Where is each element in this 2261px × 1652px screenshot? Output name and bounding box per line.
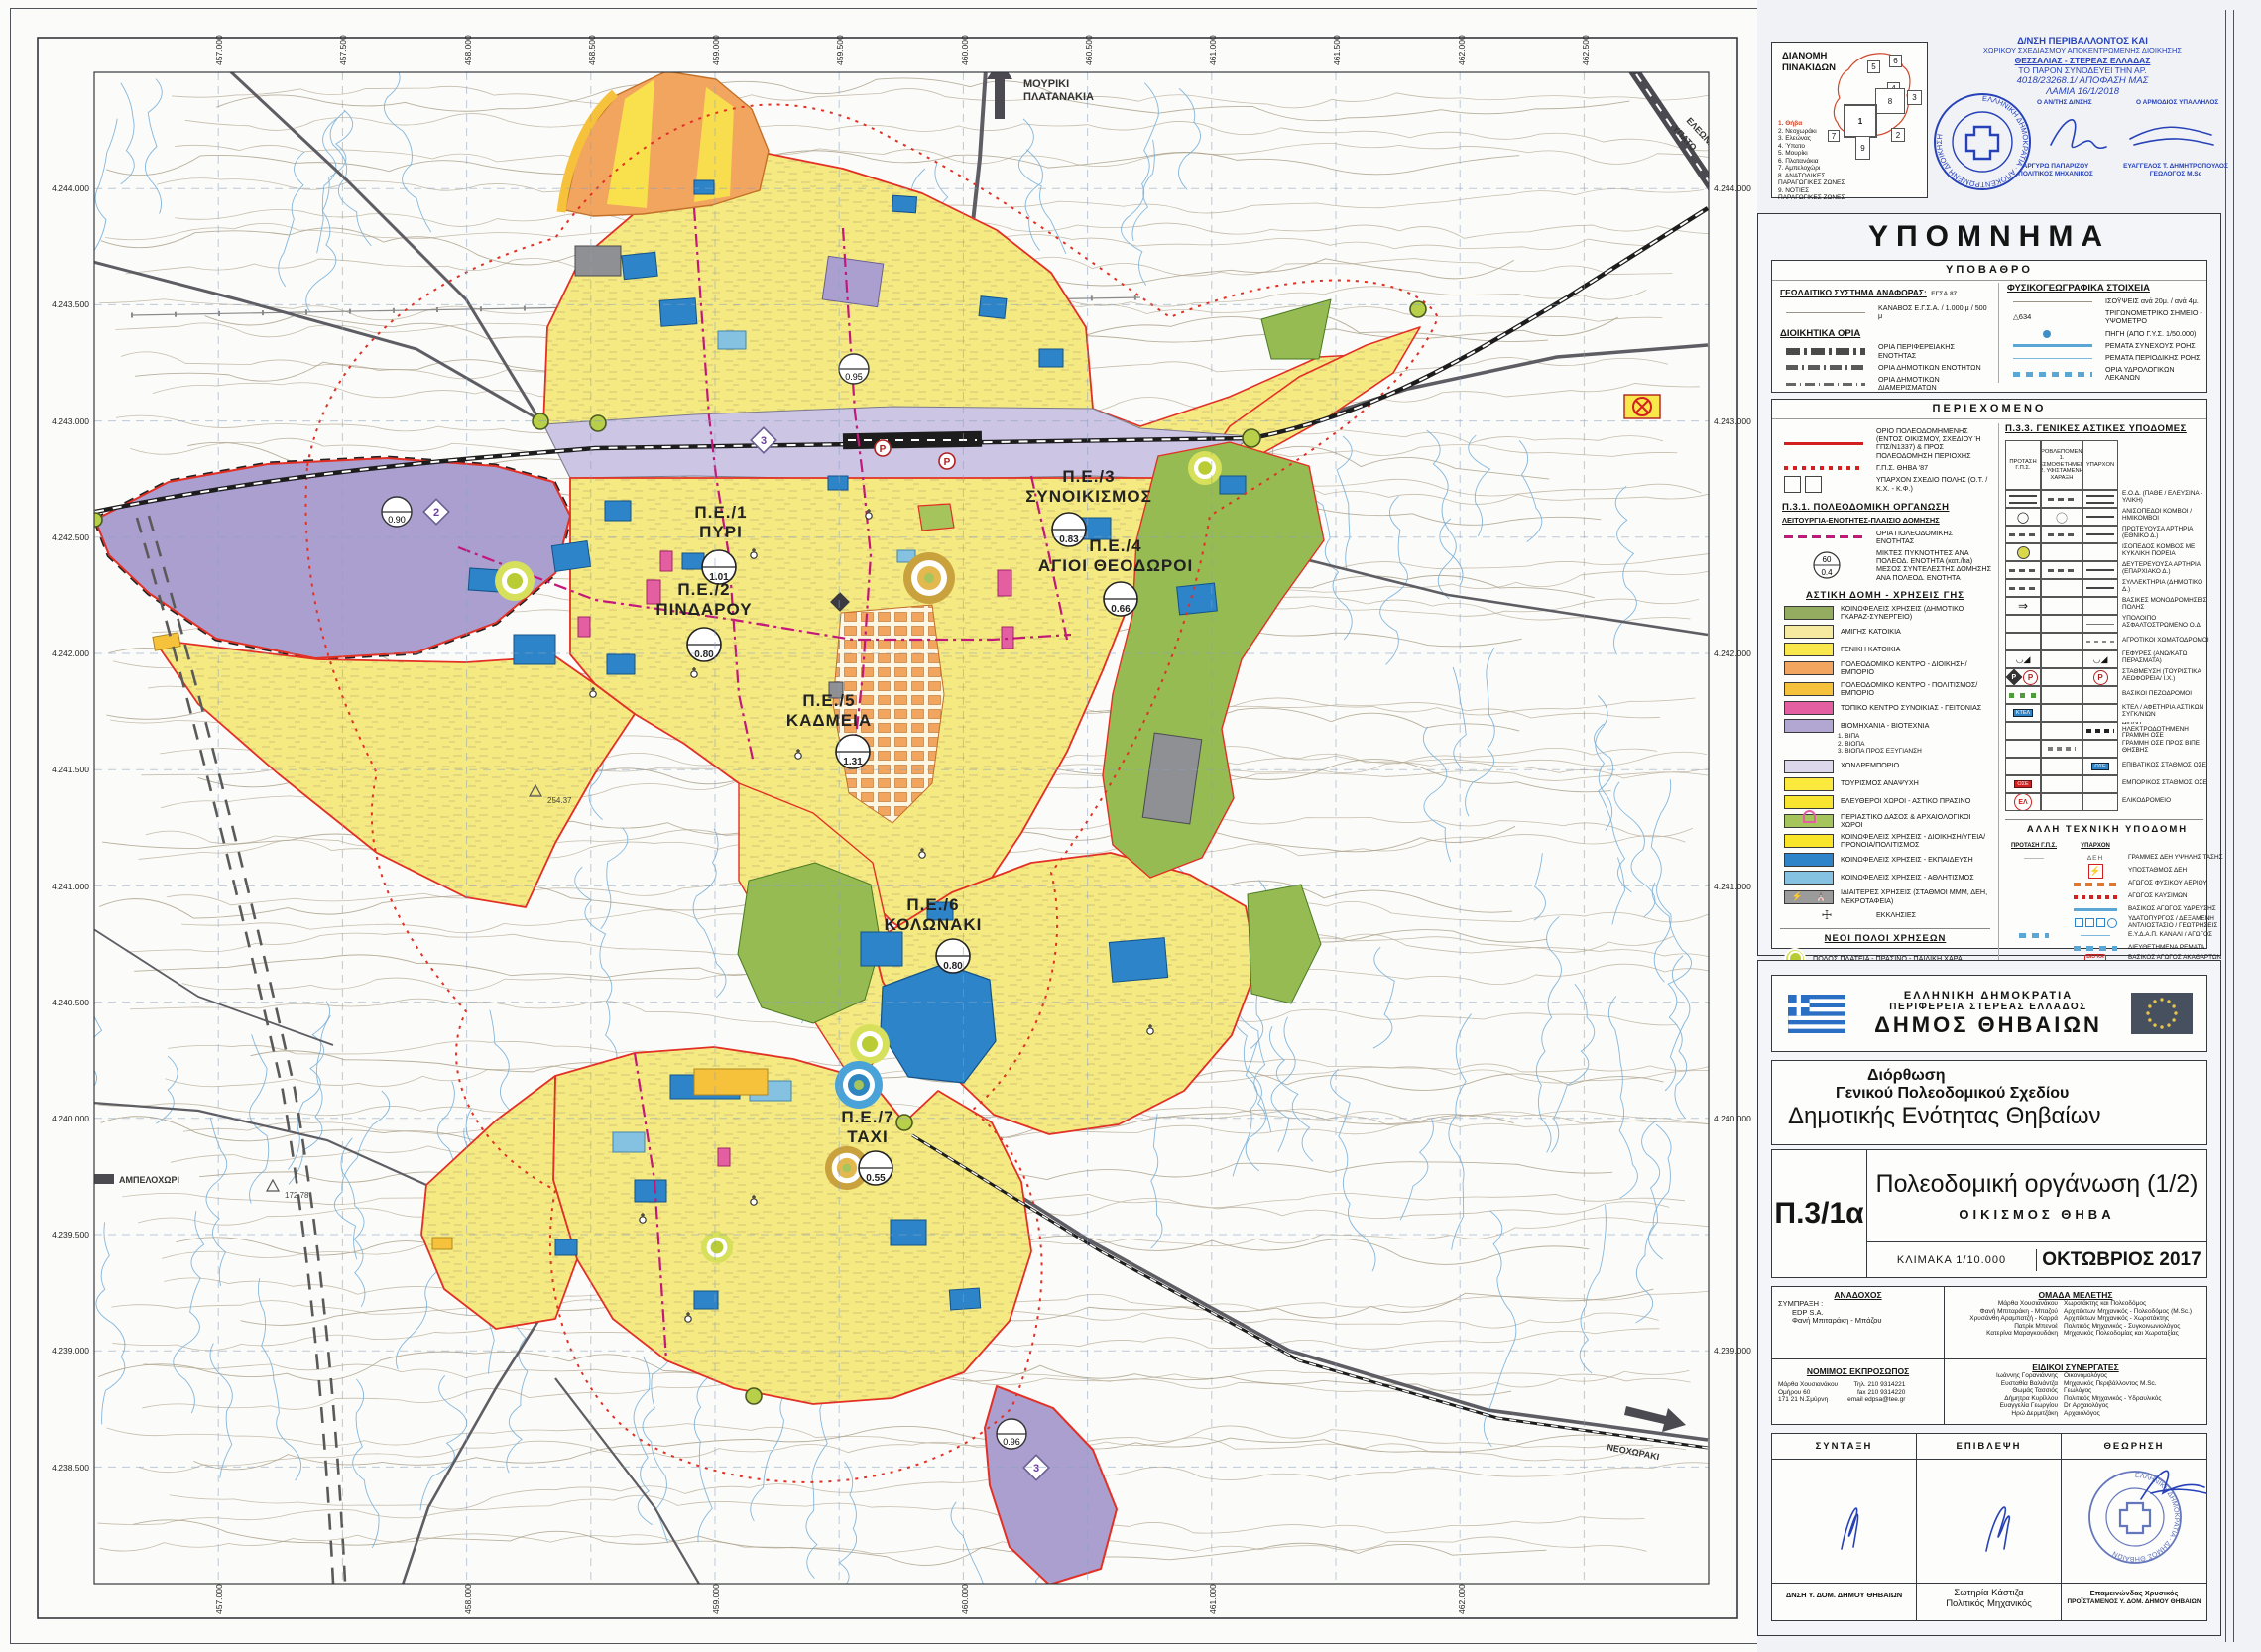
svg-text:4.240.000: 4.240.000: [1714, 1114, 1751, 1123]
svg-text:0.80: 0.80: [694, 649, 714, 660]
p33-title: Π.3.3. ΓΕΝΙΚΕΣ ΑΣΤΙΚΕΣ ΥΠΟΔΟΜΕΣ: [2005, 423, 2209, 434]
spec-name: Ευσταθία Βαλιάντζα: [1951, 1380, 2058, 1388]
svg-text:ΚΑΔΜΕΙΑ: ΚΑΔΜΕΙΑ: [786, 711, 872, 730]
team-role: Μηχανικός Πολεοδομίας και Χωροταξίας: [2064, 1330, 2201, 1338]
svg-text:0.80: 0.80: [943, 961, 963, 972]
svg-text:4.243.500: 4.243.500: [52, 299, 89, 309]
landuse-sub: 1. ΒΙΠΑ: [1838, 733, 1992, 741]
project-line: Διόρθωση: [1867, 1067, 2206, 1085]
legend-label: ΜΕΣΟΣ ΣΥΝΤΕΛΕΣΤΗΣ ΔΟΜΗΣΗΣ ΑΝΑ ΠΟΛΕΟΔ. ΕΝ…: [1876, 564, 1991, 581]
team-role: Αρχιτέκτων Μηχανικός - Πολεοδόμος (M.Sc.…: [2064, 1308, 2201, 1316]
credits-text: Φανή Μπιταράκη - Μπάζου: [1792, 1317, 1938, 1326]
team-name: Μάρθα Χουσιανάκου: [1951, 1300, 2058, 1308]
signature-squiggle: [1822, 1489, 1881, 1559]
tile: 3: [1912, 93, 1916, 102]
spec-role: Πολιτικός Μηχανικός - Υδραυλικός: [2064, 1395, 2201, 1403]
svg-text:4.240.000: 4.240.000: [52, 1114, 89, 1123]
spec-role: Dr Αρχαιολόγος: [2064, 1402, 2201, 1410]
svg-text:ΤΑΧΙ: ΤΑΧΙ: [847, 1127, 888, 1146]
authority-line: ΠΕΡΙΦΕΡΕΙΑ ΣΤΕΡΕΑΣ ΕΛΛΑΔΟΣ: [1845, 1002, 2131, 1012]
landuse-label: ΠΟΛΕΟΔΟΜΙΚΟ ΚΕΝΤΡΟ - ΔΙΟΙΚΗΣΗ/ΕΜΠΟΡΙΟ: [1841, 660, 1992, 676]
project-line: Δημοτικής Ενότητας Θηβαίων: [1788, 1103, 2206, 1130]
svg-text:Π.Ε./3: Π.Ε./3: [1062, 467, 1115, 486]
svg-text:Π.Ε./2: Π.Ε./2: [677, 580, 730, 599]
drawing-subtitle: ΟΙΚΙΣΜΟΣ ΘΗΒΑ: [1959, 1207, 2114, 1222]
svg-text:4.241.500: 4.241.500: [52, 765, 89, 774]
eu-flag: [2131, 993, 2193, 1034]
svg-text:ΠΥΡΙ: ΠΥΡΙ: [699, 523, 743, 541]
tech-table: ΠΡΟΤΑΣΗ Γ.Π.Σ.ΥΠΑΡΧΟΝ ΔΕΗΓΡΑΜΜΕΣ ΔΕΗ ΥΨΗ…: [2005, 839, 2209, 968]
svg-text:458.500: 458.500: [587, 35, 597, 65]
infrastructure-column: Π.3.3. ΓΕΝΙΚΕΣ ΑΣΤΙΚΕΣ ΥΠΟΔΟΜΕΣ ΠΡΟΤΑΣΗ …: [1998, 423, 2209, 968]
index-item: 4. Ύπατο: [1778, 143, 1847, 151]
map-content: P P 254.37 172.78 2 0.90 3 0.95 3 0.96 Π…: [21, 40, 1752, 1652]
geo-value: ΕΓΣΑ 87: [1931, 291, 1957, 297]
landuse-label: ΚΟΙΝΩΦΕΛΕΙΣ ΧΡΗΣΕΙΣ (ΔΗΜΟΤΙΚΟ ΓΚΑΡΑΖ-ΣΥΝ…: [1841, 605, 1992, 621]
landuse-label: ΚΟΙΝΩΦΕΛΕΙΣ ΧΡΗΣΕΙΣ - ΔΙΟΙΚΗΣΗ/ΥΓΕΙΑ/ΠΡΟ…: [1841, 833, 1992, 849]
index-item: 5. Μουρίκι: [1778, 150, 1847, 158]
svg-text:0.4: 0.4: [1821, 568, 1833, 577]
svg-text:Π.Ε./7: Π.Ε./7: [841, 1108, 893, 1126]
landuse-label: ΠΟΛΕΟΔΟΜΙΚΟ ΚΕΝΤΡΟ - ΠΟΛΙΤΙΣΜΟΣ/ΕΜΠΟΡΙΟ: [1841, 681, 1992, 697]
landuse-label: ΕΛΕΥΘΕΡΟΙ ΧΩΡΟΙ - ΑΣΤΙΚΟ ΠΡΑΣΙΝΟ: [1841, 797, 1970, 805]
credits-title: ΝΟΜΙΜΟΣ ΕΚΠΡΟΣΩΠΟΣ: [1778, 1366, 1938, 1376]
svg-text:4.239.500: 4.239.500: [52, 1230, 89, 1239]
index-list: 1. Θήβα 2. Νεοχωράκι 3. Ελεώνας 4. Ύπατο…: [1778, 120, 1847, 202]
ose-station-icon: [1624, 395, 1660, 418]
stamp-line: ΘΕΣΣΑΛΙΑΣ - ΣΤΕΡΕΑΣ ΕΛΛΑΔΑΣ: [1942, 56, 2223, 65]
svg-text:4.240.500: 4.240.500: [52, 998, 89, 1007]
legend-label: ΠΗΓΗ (ΑΠΟ Γ.Υ.Σ. 1/50.000): [2105, 330, 2196, 338]
credits-title: ΟΜΑΔΑ ΜΕΛΕΤΗΣ: [1951, 1290, 2201, 1300]
svg-text:462.500: 462.500: [1581, 35, 1591, 65]
team-role: Πολιτικός Μηχανικός - Συγκοινωνιολόγος: [2064, 1323, 2201, 1331]
stamp-line: ΧΩΡΙΚΟΥ ΣΧΕΔΙΑΣΜΟΥ ΑΠΟΚΕΝΤΡΩΜΕΝΗΣ ΔΙΟΙΚΗ…: [1942, 47, 2223, 56]
svg-text:ΣΥΝΟΙΚΙΣΜΟΣ: ΣΥΝΟΙΚΙΣΜΟΣ: [1025, 487, 1152, 506]
svg-text:3: 3: [761, 435, 767, 447]
svg-text:457.000: 457.000: [214, 35, 224, 65]
tile: 2: [1896, 131, 1900, 140]
landuse-title: ΑΣΤΙΚΗ ΔΟΜΗ - ΧΡΗΣΕΙΣ ΓΗΣ: [1778, 590, 1992, 601]
svg-text:458.000: 458.000: [463, 1584, 473, 1614]
p31-subtitle: ΛΕΙΤΟΥΡΓΙΑ-ΕΝΟΤΗΤΕΣ-ΠΛΑΙΣΙΟ ΔΟΜΗΣΗΣ: [1782, 517, 1992, 526]
svg-text:0.83: 0.83: [1059, 534, 1079, 545]
svg-text:4.241.000: 4.241.000: [1714, 882, 1751, 891]
stamp-name: ΕΥΑΓΓΕΛΟΣ Τ. ΔΗΜΗΤΡΟΠΟΥΛΟΣ: [2116, 163, 2235, 171]
index-item: 7. Αμπελοχώρι: [1778, 165, 1847, 173]
physio-title: ΦΥΣΙΚΟΓΕΩΓΡΑΦΙΚΑ ΣΤΟΙΧΕΙΑ: [2007, 283, 2209, 294]
spec-role: Οικονομολόγος: [2064, 1372, 2201, 1380]
svg-text:0.66: 0.66: [1111, 604, 1130, 615]
landuse-label: ΕΚΚΛΗΣΙΕΣ: [1876, 911, 1916, 919]
rep-email: email edpsa@tee.gr: [1847, 1396, 1905, 1404]
authority-line: ΕΛΛΗΝΙΚΗ ΔΗΜΟΚΡΑΤΙΑ: [1845, 990, 2131, 1002]
svg-text:4.239.000: 4.239.000: [52, 1346, 89, 1356]
landuse-label: ΚΟΙΝΩΦΕΛΕΙΣ ΧΡΗΣΕΙΣ - ΑΘΛΗΤΙΣΜΟΣ: [1841, 874, 1974, 882]
legend-label: ΟΡΙΑ ΥΔΡΟΛΟΓΙΚΩΝ ΛΕΚΑΝΩΝ: [2105, 366, 2209, 382]
tri-value: 634: [2019, 313, 2032, 322]
spec-name: Ευαγγελία Γεωργίου: [1951, 1402, 2058, 1410]
content-section: ΠΕΡΙΕΧΟΜΕΝΟ ΟΡΙΟ ΠΟΛΕΟΔΟΜΗΜΕΝΗΣ (ΕΝΤΟΣ Ο…: [1771, 399, 2207, 949]
geo-label: ΓΕΩΔΑΙΤΙΚΟ ΣΥΣΤΗΜΑ ΑΝΑΦΟΡΑΣ:: [1780, 288, 1927, 297]
svg-text:462.000: 462.000: [1457, 1584, 1467, 1614]
credits-title: ΕΙΔΙΚΟΙ ΣΥΝΕΡΓΑΤΕΣ: [1951, 1362, 2201, 1372]
svg-text:459.000: 459.000: [711, 1584, 721, 1614]
index-item: 2. Νεοχωράκι: [1778, 128, 1847, 136]
signature-squiggle: [1968, 1489, 2028, 1559]
spec-name: Ηρώ Δερμιτζάκη: [1951, 1410, 2058, 1418]
map-canvas: P P 254.37 172.78 2 0.90 3 0.95 3 0.96 Π…: [0, 0, 1757, 1652]
legend-label: ΟΡΙΑ ΔΗΜΟΤΙΚΩΝ ΕΝΟΤΗΤΩΝ: [1878, 364, 1981, 372]
section-title: ΥΠΟΒΑΘΡΟ: [1772, 261, 2206, 281]
landuse-label: ΒΙΟΜΗΧΑΝΙΑ - ΒΙΟΤΕΧΝΙΑ: [1841, 722, 1929, 730]
authority-box: ΕΛΛΗΝΙΚΗ ΔΗΜΟΚΡΑΤΙΑ ΠΕΡΙΦΕΡΕΙΑ ΣΤΕΡΕΑΣ Ε…: [1771, 975, 2207, 1052]
legend-title: ΥΠΟΜΝΗΜΑ: [1758, 220, 2220, 254]
rep-addr: Ομήρου 60: [1778, 1389, 1838, 1397]
index-item: 6. Πλατανάκια: [1778, 158, 1847, 166]
team-name: Φανή Μπιταράκη - Μπαζού: [1951, 1308, 2058, 1316]
spec-role: Γεωλόγος: [2064, 1387, 2201, 1395]
landuse-label: ΤΟΠΙΚΟ ΚΕΝΤΡΟ ΣΥΝΟΙΚΙΑΣ - ΓΕΙΤΟΝΙΑΣ: [1841, 704, 1981, 712]
svg-text:457.000: 457.000: [214, 1584, 224, 1614]
basemap-section: ΥΠΟΒΑΘΡΟ ΓΕΩΔΑΙΤΙΚΟ ΣΥΣΤΗΜΑ ΑΝΑΦΟΡΑΣ: ΕΓ…: [1771, 260, 2207, 393]
svg-text:1.31: 1.31: [843, 757, 863, 767]
svg-text:2: 2: [433, 507, 439, 519]
svg-text:4.244.000: 4.244.000: [52, 183, 89, 193]
team-name: Κατερίνα Μαραγκουδάκη: [1951, 1330, 2058, 1338]
signoff-footer: ΔΝΣΗ Υ. ΔΟΜ. ΔΗΜΟΥ ΘΗΒΑΙΩΝ: [1772, 1583, 1917, 1620]
title-block: ΕΛΛΗΝΙΚΗ ΔΗΜΟΚΡΑΤΙΑ ΠΕΡΙΦΕΡΕΙΑ ΣΤΕΡΕΑΣ Ε…: [1757, 960, 2221, 1636]
signoff-footer: Πολιτικός Μηχανικός: [1917, 1598, 2061, 1609]
landuse-zones: [95, 71, 1420, 1585]
map-sheet: P P 254.37 172.78 2 0.90 3 0.95 3 0.96 Π…: [0, 0, 2261, 1652]
svg-text:459.500: 459.500: [835, 35, 845, 65]
legend-label: ΜΙΚΤΕΣ ΠΥΚΝΟΤΗΤΕΣ ΑΝΑ ΠΟΛΕΟΔ. ΕΝΟΤΗΤΑ (κ…: [1876, 548, 1972, 565]
svg-text:Π.Ε./6: Π.Ε./6: [906, 895, 959, 914]
legend-label: ΟΡΙΑ ΠΟΛΕΟΔΟΜΙΚΗΣ ΕΝΟΤΗΤΑΣ: [1876, 530, 1992, 545]
svg-text:3: 3: [1033, 1463, 1039, 1475]
svg-text:0.55: 0.55: [866, 1173, 886, 1184]
svg-text:4.242.500: 4.242.500: [52, 532, 89, 542]
svg-text:462.000: 462.000: [1457, 35, 1467, 65]
landuse-label: ΚΟΙΝΩΦΕΛΕΙΣ ΧΡΗΣΕΙΣ - ΕΚΠΑΙΔΕΥΣΗ: [1841, 856, 1973, 864]
admin-title: ΔΙΟΙΚΗΤΙΚΑ ΟΡΙΑ: [1780, 328, 1990, 339]
svg-text:4.242.000: 4.242.000: [52, 649, 89, 658]
svg-text:ΠΙΝΔΑΡΟΥ: ΠΙΝΔΑΡΟΥ: [655, 600, 752, 619]
landuse-label: ΑΜΙΓΗΣ ΚΑΤΟΙΚΙΑ: [1841, 628, 1901, 636]
approval-stamp: Δ/ΝΣΗ ΠΕΡΙΒΑΛΛΟΝΤΟΣ ΚΑΙ ΧΩΡΙΚΟΥ ΣΧΕΔΙΑΣΜ…: [1942, 36, 2223, 204]
landuse-sub: 2. ΒΙΟΠΑ: [1838, 741, 1992, 749]
svg-text:461.000: 461.000: [1208, 1584, 1218, 1614]
legend-label: ΟΡΙΑ ΠΕΡΙΦΕΡΕΙΑΚΗΣ ΕΝΟΤΗΤΑΣ: [1878, 343, 1990, 359]
signoff-footer: ΠΡΟΪΣΤΑΜΕΝΟΣ Υ. ΔΟΜ. ΔΗΜΟΥ ΘΗΒΑΙΩΝ: [2062, 1598, 2206, 1606]
svg-text:460.500: 460.500: [1084, 35, 1094, 65]
tile: 1: [1858, 117, 1862, 126]
legend-label: ΡΕΜΑΤΑ ΠΕΡΙΟΔΙΚΗΣ ΡΟΗΣ: [2105, 354, 2201, 362]
signoff-footer: Επαμεινώνδας Χρυσικός: [2062, 1590, 2206, 1598]
index-item: 8. ΑΝΑΤΟΛΙΚΕΣ ΠΑΡΑΓΩΓΙΚΕΣ ΖΩΝΕΣ: [1778, 173, 1847, 187]
svg-text:4.242.000: 4.242.000: [1714, 649, 1751, 658]
spec-name: Δήμητρα Κυρίλλου: [1951, 1395, 2058, 1403]
landuse-column: ΟΡΙΟ ΠΟΛΕΟΔΟΜΗΜΕΝΗΣ (ΕΝΤΟΣ ΟΙΚΙΣΜΟΥ, ΣΧΕ…: [1778, 423, 1992, 1021]
rep-name: Μάρθα Χουσιανάκου: [1778, 1381, 1838, 1389]
svg-text:4.241.000: 4.241.000: [52, 882, 89, 891]
team-role: Αρχιτέκτων Μηχανικός - Χωροτάκτης: [2064, 1315, 2201, 1323]
stamp-name: ΠΟΛΙΤΙΚΟΣ ΜΗΧΑΝΙΚΟΣ: [2001, 171, 2110, 178]
svg-text:460.000: 460.000: [960, 1584, 970, 1614]
index-item: 1. Θήβα: [1778, 120, 1847, 128]
svg-text:ΠΛΑΤΑΝΑΚΙΑ: ΠΛΑΤΑΝΑΚΙΑ: [1023, 91, 1094, 103]
landuse-label: ΧΟΝΔΡΕΜΠΟΡΙΟ: [1841, 762, 1899, 769]
rep-tel: Τηλ. 210 9314221: [1847, 1381, 1905, 1389]
svg-text:458.000: 458.000: [463, 35, 473, 65]
spec-role: Αρχαιολόγος: [2064, 1410, 2201, 1418]
svg-text:459.000: 459.000: [711, 35, 721, 65]
svg-text:4.239.000: 4.239.000: [1714, 1346, 1751, 1356]
tile: 5: [1871, 62, 1875, 71]
landuse-label: ΤΟΥΡΙΣΜΟΣ ΑΝΑΨΥΧΗ: [1841, 779, 1919, 787]
right-panel: ΔΙΑΝΟΜΗ ΠΙΝΑΚΙΔΩΝ 5 6 4 3 8 2 1 7 9 1. Θ…: [1757, 0, 2261, 1652]
svg-text:460.000: 460.000: [960, 35, 970, 65]
tile: 9: [1860, 144, 1864, 153]
svg-text:4.243.000: 4.243.000: [52, 416, 89, 426]
rep-addr: 171 21 Ν.Σμύρνη: [1778, 1396, 1838, 1404]
svg-text:ΑΓΙΟΙ ΘΕΟΔΩΡΟΙ: ΑΓΙΟΙ ΘΕΟΔΩΡΟΙ: [1038, 556, 1193, 575]
svg-text:P: P: [880, 444, 887, 455]
svg-text:0.90: 0.90: [388, 515, 406, 525]
tile: 8: [1888, 97, 1892, 106]
stamp-signatures: [2031, 105, 2219, 165]
landuse-sub: 3. ΒΙΟΠΑ ΠΡΟΣ ΕΞΥΓΙΑΝΣΗ: [1838, 748, 1992, 756]
svg-text:4.243.000: 4.243.000: [1714, 416, 1751, 426]
stamp-name: ΓΕΩΛΟΓΟΣ M.Sc: [2116, 171, 2235, 178]
tile: 6: [1893, 57, 1897, 65]
signoff-footer: Σωτηρία Κάστιζα: [1917, 1588, 2061, 1598]
density-symbol: 600.4: [1812, 550, 1842, 580]
signoff-header: ΣΥΝΤΑΞΗ: [1772, 1434, 1917, 1460]
sheet-index-box: ΔΙΑΝΟΜΗ ΠΙΝΑΚΙΔΩΝ 5 6 4 3 8 2 1 7 9 1. Θ…: [1771, 42, 1928, 198]
stamp-handwritten: 4018/23268.1/ ΑΠΟΦΑΣΗ ΜΑΣ: [1942, 75, 2223, 86]
spot-height: 254.37: [547, 796, 572, 805]
motorway-band: [1626, 59, 1741, 230]
index-item: 3. Ελεώνας: [1778, 135, 1847, 143]
landuse-label: ΙΔΙΑΙΤΕΡΕΣ ΧΡΗΣΕΙΣ (ΣΤΑΘΜΟΙ ΜΜΜ, ΔΕΗ, ΝΕ…: [1841, 888, 1992, 904]
legend-panel: ΥΠΟΜΝΗΜΑ ΥΠΟΒΑΘΡΟ ΓΕΩΔΑΙΤΙΚΟ ΣΥΣΤΗΜΑ ΑΝΑ…: [1757, 213, 2221, 956]
credits-box: ΑΝΑΔΟΧΟΣ ΣΥΜΠΡΑΞΗ : EDP S.A. Φανή Μπιταρ…: [1771, 1286, 2207, 1425]
legend-label: ΙΣΟΫΨΕΙΣ ανά 20μ. / ανά 4μ.: [2105, 297, 2199, 305]
round-stamp-icon: ΕΛΛΗΝΙΚΗ ΔΗΜΟΚΡΑΤΙΑ · ΑΠΟΚΕΝΤΡΩΜΕΝΗ ΔΙΟΙ…: [1928, 87, 2037, 196]
signoff-header: ΘΕΩΡΗΣΗ: [2062, 1434, 2206, 1460]
signature-squiggle: [2121, 1460, 2210, 1509]
spot-height: 172.78: [285, 1191, 309, 1200]
svg-text:Π.Ε./5: Π.Ε./5: [802, 691, 855, 710]
stamp-line: ΤΟ ΠΑΡΟΝ ΣΥΝΟΔΕΥΕΙ ΤΗΝ ΑΡ.: [1942, 65, 2223, 75]
legend-label: ΥΠΑΡΧΟΝ ΣΧΕΔΙΟ ΠΟΛΗΣ (Ο.Τ. / Κ.Χ. - Κ.Φ.…: [1876, 476, 1992, 492]
p31-title: Π.3.1. ΠΟΛΕΟΔΟΜΙΚΗ ΟΡΓΑΝΩΣΗ: [1782, 502, 1992, 513]
tech-title: ΑΛΛΗ ΤΕΧΝΙΚΗ ΥΠΟΔΟΜΗ: [2005, 824, 2209, 835]
svg-text:461.500: 461.500: [1332, 35, 1342, 65]
project-line: Γενικού Πολεοδομικού Σχεδίου: [1836, 1085, 2206, 1103]
stamp-name: ΑΡΓΥΡΩ ΠΑΠΑΡΙΖΟΥ: [2001, 163, 2110, 171]
svg-text:457.500: 457.500: [338, 35, 348, 65]
landuse-label: ΠΕΡΙΑΣΤΙΚΟ ΔΑΣΟΣ & ΑΡΧΑΙΟΛΟΓΙΚΟΙ ΧΩΡΟΙ: [1841, 813, 1992, 829]
p33-table: ΠΡΟΤΑΣΗ Γ.Π.Σ.ΠΡΟΒΛΕΠΟΜΕΝΟ 1. ΘΕΣΜΟΘΕΤΗΜ…: [2005, 440, 2209, 811]
drawing-scale: ΚΛΙΜΑΚΑ 1/10.000: [1867, 1254, 2036, 1266]
index-item: 9. ΝΟΤΙΕΣ ΠΑΡΑΓΩΓΙΚΕΣ ΖΩΝΕΣ: [1778, 187, 1847, 202]
spec-name: Ιωάννης Γορανιάννης: [1951, 1372, 2058, 1380]
drawing-date: ΟΚΤΩΒΡΙΟΣ 2017: [2036, 1249, 2206, 1271]
greek-flag: [1788, 995, 1845, 1033]
svg-text:ΑΜΠΕΛΟΧΩΡΙ: ΑΜΠΕΛΟΧΩΡΙ: [119, 1175, 179, 1185]
team-name: Χρυσάνθη Αραμπατζή - Καρρά: [1951, 1315, 2058, 1323]
poles-title: ΝΕΟΙ ΠΟΛΟΙ ΧΡΗΣΕΩΝ: [1778, 933, 1992, 944]
drawing-code: Π.3/1α: [1774, 1197, 1863, 1231]
svg-text:Π.Ε./1: Π.Ε./1: [694, 503, 747, 522]
svg-text:ΜΟΥΡΙΚΙ: ΜΟΥΡΙΚΙ: [1023, 78, 1069, 90]
legend-label: Γ.Π.Σ. ΘΗΒΑ '87: [1876, 464, 1928, 472]
svg-text:0.95: 0.95: [845, 372, 863, 382]
drawing-title: Πολεοδομική οργάνωση (1/2): [1876, 1170, 2199, 1199]
legend-label: ΟΡΙΑ ΔΗΜΟΤΙΚΩΝ ΔΙΑΜΕΡΙΣΜΑΤΩΝ: [1878, 376, 1990, 392]
svg-text:0.96: 0.96: [1003, 1437, 1020, 1447]
drawing-box: Π.3/1α Πολεοδομική οργάνωση (1/2) ΟΙΚΙΣΜ…: [1771, 1149, 2207, 1278]
team-role: Χωροτάκτης και Πολεοδόμος: [2064, 1300, 2201, 1308]
svg-text:ΚΟΛΩΝΑΚΙ: ΚΟΛΩΝΑΚΙ: [885, 915, 983, 934]
svg-text:P: P: [944, 457, 951, 468]
legend-label: ΟΡΙΟ ΠΟΛΕΟΔΟΜΗΜΕΝΗΣ (ΕΝΤΟΣ ΟΙΚΙΣΜΟΥ, ΣΧΕ…: [1876, 427, 1992, 460]
svg-text:4.238.500: 4.238.500: [52, 1463, 89, 1473]
spec-role: Μηχανικός Περιβάλλοντος M.Sc.: [2064, 1380, 2201, 1388]
legend-label: ΚΑΝΑΒΟΣ Ε.Γ.Σ.Α. / 1.000 μ / 500 μ: [1878, 304, 1990, 320]
svg-text:Π.Ε./4: Π.Ε./4: [1089, 536, 1141, 555]
svg-text:461.000: 461.000: [1208, 35, 1218, 65]
rep-fax: fax 210 9314220: [1847, 1389, 1905, 1397]
signoff-header: ΕΠΙΒΛΕΨΗ: [1917, 1434, 2062, 1460]
legend-label: ΡΕΜΑΤΑ ΣΥΝΕΧΟΥΣ ΡΟΗΣ: [2105, 342, 2196, 350]
landuse-label: ΓΕΝΙΚΗ ΚΑΤΟΙΚΙΑ: [1841, 646, 1900, 653]
authority-line: ΔΗΜΟΣ ΘΗΒΑΙΩΝ: [1845, 1012, 2131, 1038]
project-title-box: Διόρθωση Γενικού Πολεοδομικού Σχεδίου Δη…: [1771, 1060, 2207, 1145]
signoff-box: ΣΥΝΤΑΞΗ ΕΠΙΒΛΕΨΗ ΘΕΩΡΗΣΗ ΕΛΛΗΝΙΚΗ ΔΗΜΟΚΡ…: [1771, 1433, 2207, 1621]
svg-text:4.244.000: 4.244.000: [1714, 183, 1751, 193]
section-title: ΠΕΡΙΕΧΟΜΕΝΟ: [1772, 400, 2206, 419]
team-name: Πατρίκ Μπενοέ: [1951, 1323, 2058, 1331]
legend-label: ΤΡΙΓΩΝΟΜΕΤΡΙΚΟ ΣΗΜΕΙΟ - ΥΨΟΜΕΤΡΟ: [2105, 309, 2209, 325]
svg-text:60: 60: [1823, 555, 1832, 564]
spec-name: Θωμάς Τασσιός: [1951, 1387, 2058, 1395]
